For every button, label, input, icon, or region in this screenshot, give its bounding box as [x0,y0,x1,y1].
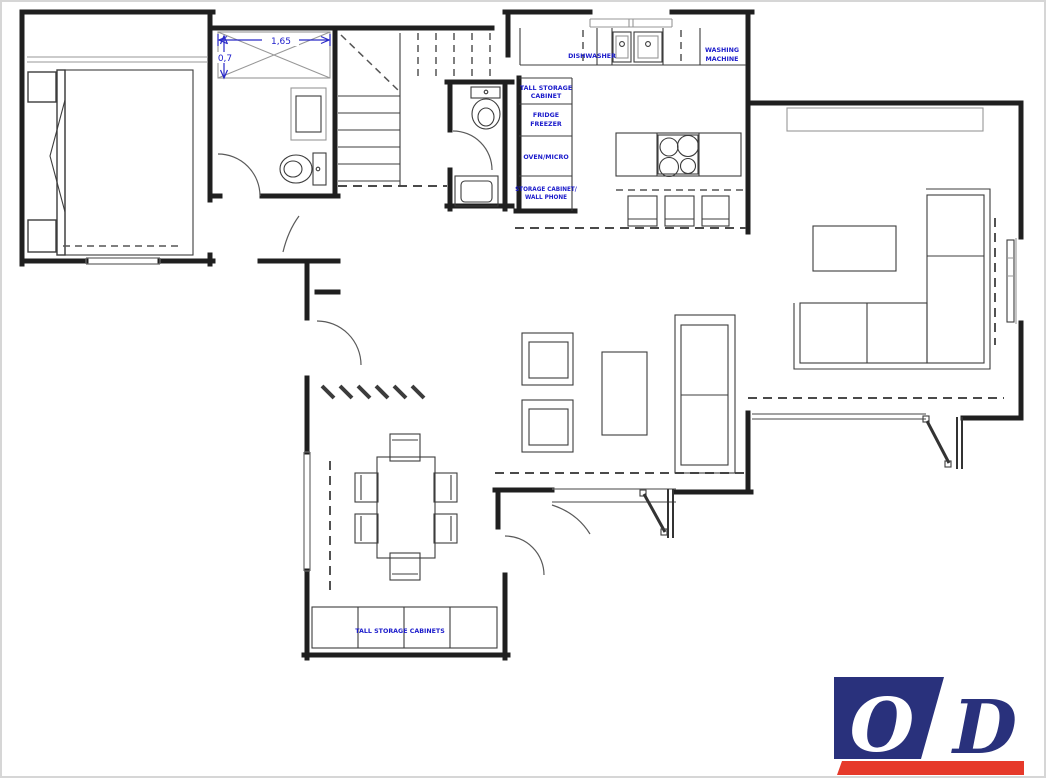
nightstand-bottom [28,220,56,252]
label-storage-cabinet-1: STORAGE CABINET/ [515,187,578,193]
glass-wall-south-lower [552,489,676,538]
stair-break-line [341,35,399,91]
kitchen-window [590,19,672,27]
dining-room [304,386,544,648]
bedroom [27,57,208,264]
wc-basin [455,176,498,206]
kitchen-island [616,133,746,190]
armchair-2 [522,400,573,452]
logo-letter-d: D [951,685,1017,771]
partition-hatches [322,386,424,398]
side-table [602,352,647,435]
logo-red-bar [837,761,1024,775]
floor-plan-drawing: 1,65 0,7 DISHWASHER WASHING MACHINE TALL… [0,0,1046,778]
glass-wall-south-upper [752,414,962,469]
bed [28,70,193,255]
label-storage-cabinet-2: WALL PHONE [525,195,567,201]
dining-window [304,452,310,571]
hall-door-arc [283,216,299,252]
label-washing-machine-2: MACHINE [706,56,739,63]
label-tall-storage-1: TALL STORAGE [520,85,572,92]
chair-bottom [390,553,420,580]
chair-right-1 [434,473,457,502]
family-area [522,315,735,473]
staircase [338,33,490,186]
coffee-table [813,226,896,271]
od-logo: O D [834,677,1024,775]
corner-sofa [794,189,990,369]
chair-left-1 [355,473,378,502]
two-seat-sofa [675,315,735,473]
label-oven-micro: OVEN/MICRO [523,154,569,161]
chair-right-2 [434,514,457,543]
nightstand-top [28,72,56,102]
dining-door-arc [505,536,544,575]
bedroom-window [86,258,160,264]
label-fridge-1: FRIDGE [533,112,559,119]
wc [453,87,500,206]
label-tall-storage-2: CABINET [531,93,562,100]
vanity-sink [291,88,326,140]
label-dining-cabinets: TALL STORAGE CABINETS [355,628,445,635]
wc-toilet [471,87,500,129]
bedroom-rail [27,57,208,62]
folding-door-a [923,416,962,469]
terrace-door-arc [552,505,590,534]
chair-left-2 [355,514,378,543]
floor-plan-sheet: 1,65 0,7 DISHWASHER WASHING MACHINE TALL… [0,0,1046,778]
armchair-1 [522,333,573,385]
dim-depth-label: 0,7 [218,54,232,64]
label-washing-machine-1: WASHING [705,47,739,54]
bathroom-toilet [280,153,326,185]
dining-table [377,457,435,558]
sliding-door-right [1007,238,1016,324]
dim-width-label: 1,65 [271,37,291,47]
hall-dining-door-arc [317,321,361,365]
wc-door-arc [453,131,492,170]
label-dishwasher: DISHWASHER [568,53,616,60]
folding-door-b [640,489,673,538]
kitchen-sink-double [613,32,662,62]
label-fridge-2: FREEZER [530,121,562,128]
dining-table-set [355,434,457,580]
logo-letter-o: O [850,683,914,769]
sideboard [787,108,983,131]
bathroom-door-arc [218,154,260,196]
bar-stools [628,196,729,226]
